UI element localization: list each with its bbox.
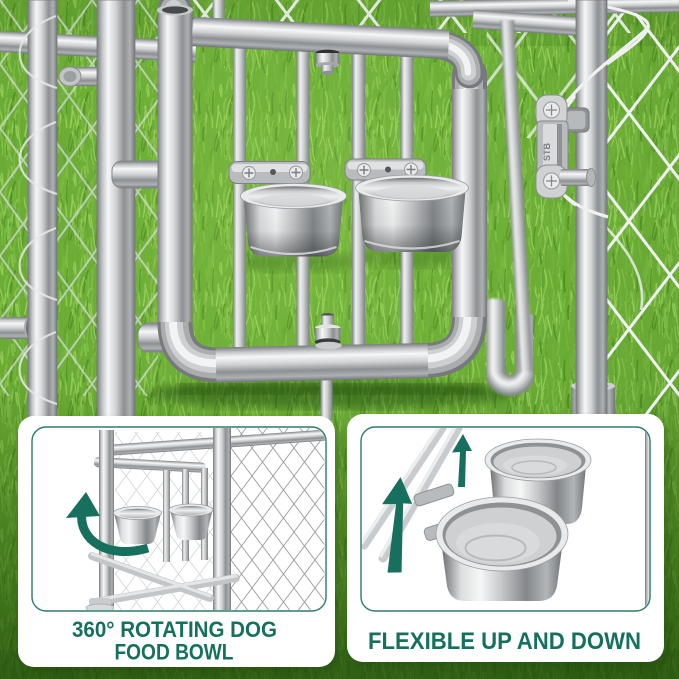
svg-text:FOOD BOWL: FOOD BOWL (115, 640, 234, 665)
svg-text:STB: STB (542, 142, 552, 161)
svg-text:360° ROTATING DOG: 360° ROTATING DOG (72, 617, 277, 642)
svg-text:FLEXIBLE UP AND DOWN: FLEXIBLE UP AND DOWN (368, 628, 641, 655)
